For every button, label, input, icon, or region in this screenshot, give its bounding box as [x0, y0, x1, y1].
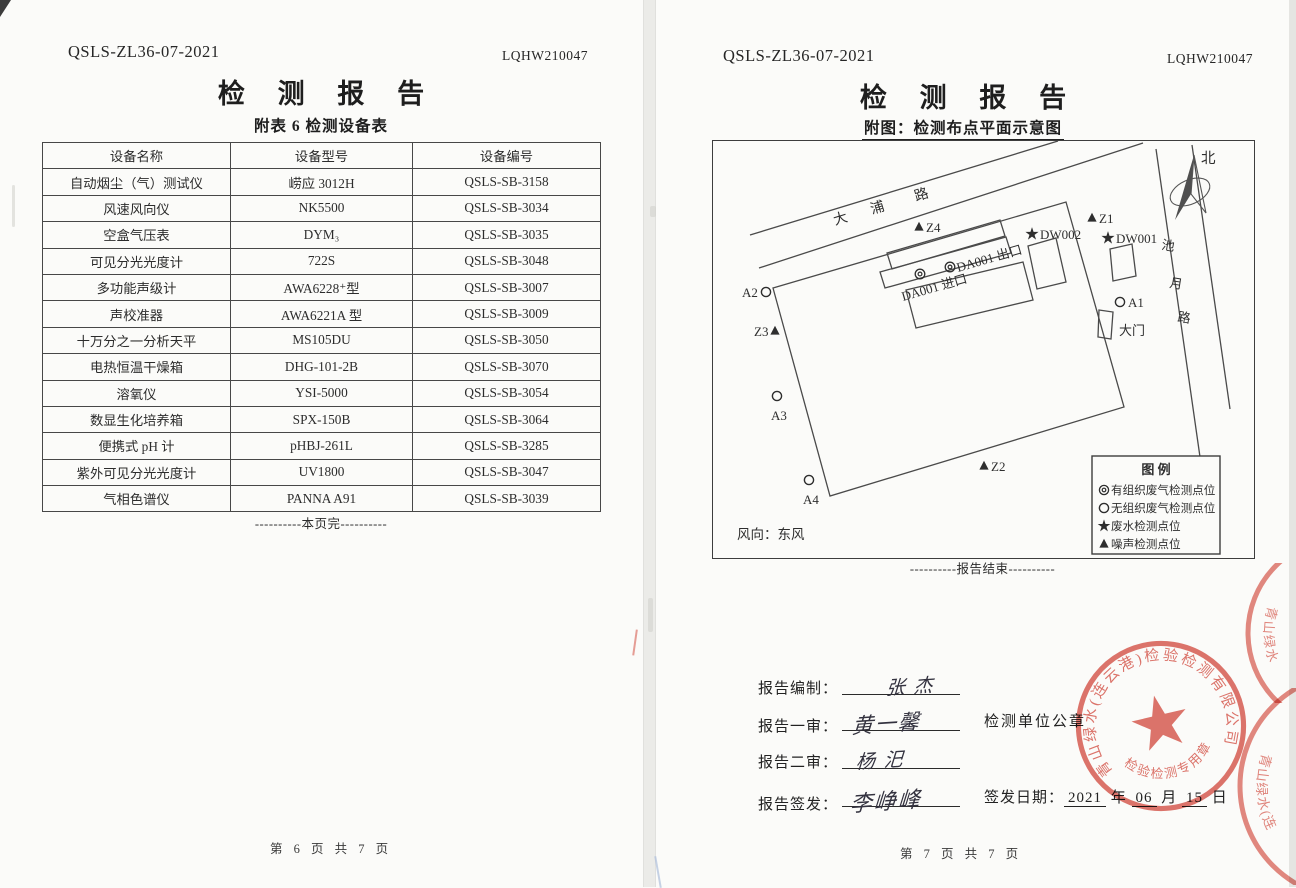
- noise-marker-z1: [1087, 213, 1096, 222]
- wind-direction-label: 风向：东风: [737, 527, 805, 542]
- cell: QSLS-SB-3158: [413, 169, 601, 195]
- cell: QSLS-SB-3048: [413, 248, 601, 274]
- scan-corner-mark: [0, 0, 11, 17]
- page-footer-right: 第 7 页 共 7 页: [900, 843, 1022, 862]
- table-row: 电热恒温干燥箱DHG-101-2BQSLS-SB-3070: [43, 354, 601, 380]
- table-row: 溶氧仪YSI-5000QSLS-SB-3054: [43, 380, 601, 406]
- cell: 自动烟尘（气）测试仪: [43, 169, 231, 195]
- road-char: 路: [1177, 309, 1192, 326]
- site-plan-diagram: 北 大 浦 路 池 月 路 Z4 Z1 DW002 DW001 A2 A1 Z3…: [712, 140, 1255, 559]
- cell: 722S: [231, 248, 413, 274]
- point-label-z1: Z1: [1099, 211, 1113, 226]
- point-label-a4: A4: [803, 492, 819, 507]
- seal-type-text: 检验检测专用章: [1119, 736, 1219, 790]
- signature-label: 报告签发：: [758, 797, 838, 813]
- point-label-a1: A1: [1128, 295, 1144, 310]
- col-header-device-no: 设备编号: [413, 143, 601, 169]
- cell: pHBJ-261L: [231, 433, 413, 459]
- point-label-dw002: DW002: [1040, 227, 1081, 242]
- cell: QSLS-SB-3050: [413, 327, 601, 353]
- doc-code-right: QSLS-ZL36-07-2021: [723, 46, 875, 66]
- table-row: 数显生化培养箱SPX-150BQSLS-SB-3064: [43, 406, 601, 432]
- cell: QSLS-SB-3047: [413, 459, 601, 485]
- cell: QSLS-SB-3039: [413, 486, 601, 512]
- subtitle-left: 附表 6 检测设备表: [42, 114, 600, 136]
- gate-label: 大门: [1119, 323, 1145, 338]
- cell: 可见分光光度计: [43, 248, 231, 274]
- fugitive-marker-a3: [772, 391, 781, 400]
- seal-star-icon: [1127, 689, 1193, 753]
- signature-row-2: 报告一审： 黄一馨: [758, 708, 960, 736]
- legend-item-label: 有组织废气检测点位: [1111, 483, 1216, 497]
- legend-item-label: 噪声检测点位: [1111, 537, 1181, 551]
- handwritten-signature: 杨 汜: [855, 744, 906, 775]
- point-label-a2: A2: [742, 285, 758, 300]
- table-row: 便携式 pH 计pHBJ-261LQSLS-SB-3285: [43, 433, 601, 459]
- company-seal: 青山绿水(连云港)检验检测有限公司 检验检测专用章: [1063, 628, 1259, 824]
- signature-line: 黄一馨: [842, 708, 960, 731]
- issue-date-label: 签发日期：: [984, 790, 1064, 806]
- signature-line: 杨 汜: [842, 746, 960, 769]
- signature-label: 报告编制：: [758, 681, 838, 697]
- report-no-left: LQHW210047: [502, 48, 588, 64]
- cell: AWA6228⁺型: [231, 274, 413, 300]
- wastewater-marker-dw002: [1025, 227, 1038, 239]
- cell: QSLS-SB-3035: [413, 222, 601, 248]
- subtitle-right: 附图：检测布点平面示意图: [862, 120, 1064, 140]
- cell: DYM₃: [231, 222, 413, 248]
- partial-seal-upper: 青山绿水(连云港)检验检测有限公司: [1243, 563, 1296, 703]
- signature-line: 张 杰: [842, 672, 960, 695]
- cell: QSLS-SB-3034: [413, 195, 601, 221]
- cell: QSLS-SB-3064: [413, 406, 601, 432]
- cell: DHG-101-2B: [231, 354, 413, 380]
- cell: 崂应 3012H: [231, 169, 413, 195]
- road-dapu-label: 大 浦 路: [831, 185, 930, 228]
- road-char: 路: [912, 185, 930, 204]
- equipment-table: 设备名称 设备型号 设备编号 自动烟尘（气）测试仪崂应 3012HQSLS-SB…: [42, 142, 601, 512]
- road-char: 大: [831, 209, 849, 228]
- fugitive-marker-a4: [804, 475, 813, 484]
- cell: QSLS-SB-3070: [413, 354, 601, 380]
- cell: MS105DU: [231, 327, 413, 353]
- point-label-dw001: DW001: [1116, 231, 1157, 246]
- road-char: 月: [1169, 275, 1184, 292]
- cell: 多功能声级计: [43, 274, 231, 300]
- legend-item-fugitive: 无组织废气检测点位: [1099, 501, 1215, 515]
- cell: AWA6221A 型: [231, 301, 413, 327]
- scan-smudge: [650, 206, 656, 217]
- cell: SPX-150B: [231, 406, 413, 432]
- cell: 便携式 pH 计: [43, 433, 231, 459]
- cell: 溶氧仪: [43, 380, 231, 406]
- partial-seal-lower: 青山绿水(连云港)检验检测有限公司: [1233, 688, 1296, 885]
- page-gap: [643, 0, 656, 887]
- signature-row-4: 报告签发： 李峥峰: [758, 784, 960, 814]
- cell: 数显生化培养箱: [43, 406, 231, 432]
- noise-marker-z2: [979, 461, 988, 470]
- report-end-note: ----------报告结束----------: [712, 558, 1253, 577]
- point-label-a3: A3: [771, 408, 787, 423]
- col-header-device-name: 设备名称: [43, 143, 231, 169]
- table-row: 可见分光光度计722SQSLS-SB-3048: [43, 248, 601, 274]
- table-row: 多功能声级计AWA6228⁺型QSLS-SB-3007: [43, 274, 601, 300]
- cell: 空盒气压表: [43, 222, 231, 248]
- site-plan-svg: 北 大 浦 路 池 月 路 Z4 Z1 DW002 DW001 A2 A1 Z3…: [713, 141, 1254, 558]
- signature-label: 报告一审：: [758, 719, 838, 735]
- cell: YSI-5000: [231, 380, 413, 406]
- legend-item-wastewater: 废水检测点位: [1098, 519, 1181, 533]
- scan-smudge: [648, 598, 653, 632]
- legend-title: 图 例: [1141, 462, 1170, 477]
- subtitle-right-wrap: 附图：检测布点平面示意图: [693, 116, 1233, 138]
- col-header-device-model: 设备型号: [231, 143, 413, 169]
- road-dapu-line2: [759, 143, 1143, 268]
- signature-row-3: 报告二审： 杨 汜: [758, 746, 960, 772]
- signature-line: 李峥峰: [842, 784, 960, 807]
- table-row: 自动烟尘（气）测试仪崂应 3012HQSLS-SB-3158: [43, 169, 601, 195]
- cell: PANNA A91: [231, 486, 413, 512]
- table-row: 空盒气压表DYM₃QSLS-SB-3035: [43, 222, 601, 248]
- legend-item-label: 无组织废气检测点位: [1111, 501, 1216, 515]
- point-label-z4: Z4: [926, 220, 941, 235]
- legend-item-stack: 有组织废气检测点位: [1099, 483, 1215, 497]
- cell: 十万分之一分析天平: [43, 327, 231, 353]
- road-chiyue-line2: [1192, 145, 1230, 409]
- road-char: 浦: [868, 198, 886, 217]
- cell: QSLS-SB-3007: [413, 274, 601, 300]
- signature-row-1: 报告编制： 张 杰: [758, 672, 960, 698]
- north-label: 北: [1201, 150, 1216, 167]
- page-title-left: 检 测 报 告: [42, 72, 600, 111]
- handwritten-signature: 黄一馨: [851, 705, 922, 740]
- page-title-right: 检 测 报 告: [693, 76, 1233, 115]
- page-end-note-left: ----------本页完----------: [42, 513, 600, 532]
- building-dw001: [1110, 244, 1136, 281]
- company-seal-svg: 青山绿水(连云港)检验检测有限公司 检验检测专用章: [1063, 628, 1259, 824]
- cell: UV1800: [231, 459, 413, 485]
- table-row: 十万分之一分析天平MS105DUQSLS-SB-3050: [43, 327, 601, 353]
- cell: 声校准器: [43, 301, 231, 327]
- fugitive-marker-a2: [761, 287, 770, 296]
- cell: QSLS-SB-3009: [413, 301, 601, 327]
- doc-code-left: QSLS-ZL36-07-2021: [68, 42, 220, 62]
- building-dw002: [1028, 238, 1066, 289]
- report-no-right: LQHW210047: [1167, 51, 1253, 67]
- handwritten-signature: 张 杰: [885, 670, 936, 701]
- legend-box: 图 例 有组织废气检测点位 无组织废气检测点位 废水检测点位 噪声检测点位: [1092, 456, 1220, 554]
- table-row: 气相色谱仪PANNA A91QSLS-SB-3039: [43, 486, 601, 512]
- table-row: 声校准器AWA6221A 型QSLS-SB-3009: [43, 301, 601, 327]
- road-chiyue-label: 池 月 路: [1161, 237, 1192, 326]
- cell: QSLS-SB-3285: [413, 433, 601, 459]
- stack-marker-standalone: [915, 269, 925, 279]
- cell: 电热恒温干燥箱: [43, 354, 231, 380]
- point-label-z2: Z2: [991, 459, 1005, 474]
- cell: 紫外可见分光光度计: [43, 459, 231, 485]
- legend-item-noise: 噪声检测点位: [1099, 537, 1181, 551]
- noise-marker-z4: [914, 222, 923, 231]
- page-footer-left: 第 6 页 共 7 页: [270, 838, 392, 857]
- cell: 风速风向仪: [43, 195, 231, 221]
- table-row: 紫外可见分光光度计UV1800QSLS-SB-3047: [43, 459, 601, 485]
- handwritten-signature: 李峥峰: [849, 781, 923, 818]
- legend-item-label: 废水检测点位: [1111, 519, 1181, 533]
- fugitive-marker-a1: [1115, 297, 1124, 306]
- cell: NK5500: [231, 195, 413, 221]
- road-char: 池: [1161, 237, 1176, 254]
- signature-label: 报告二审：: [758, 755, 838, 771]
- cell: 气相色谱仪: [43, 486, 231, 512]
- table-row: 风速风向仪NK5500QSLS-SB-3034: [43, 195, 601, 221]
- point-label-z3: Z3: [754, 324, 768, 339]
- label-da001-in: DA001 进口: [900, 271, 969, 304]
- noise-marker-z3: [770, 326, 779, 335]
- cell: QSLS-SB-3054: [413, 380, 601, 406]
- wastewater-marker-dw001: [1101, 231, 1114, 243]
- table-header-row: 设备名称 设备型号 设备编号: [43, 143, 601, 169]
- scan-smudge: [12, 185, 15, 227]
